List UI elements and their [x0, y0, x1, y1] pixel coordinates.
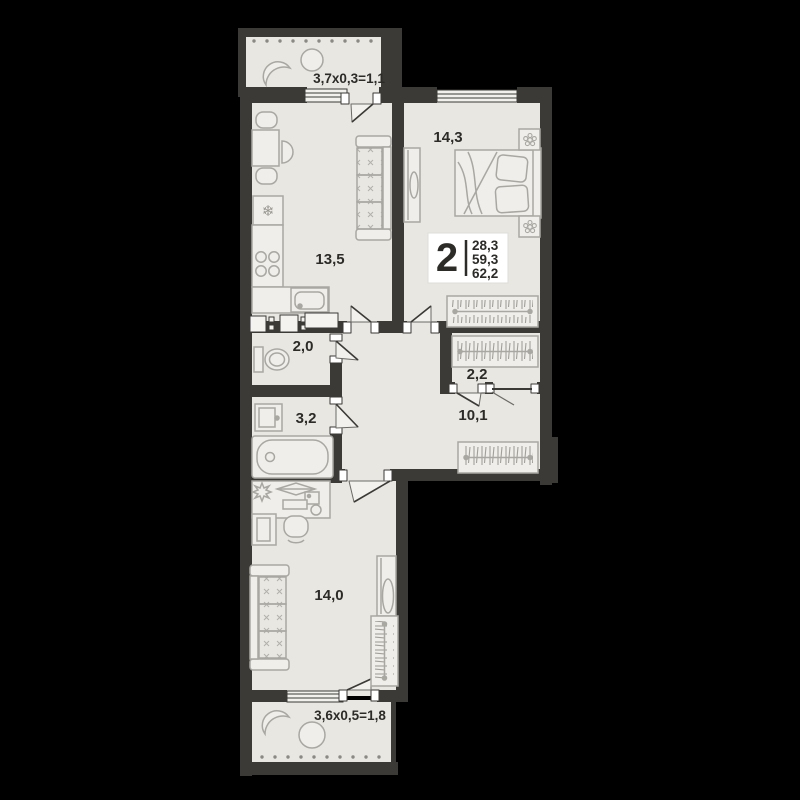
balcony-top-area-label: 3,7х0,3=1,1	[313, 71, 385, 86]
round-table-icon	[299, 722, 325, 748]
wall-right	[540, 87, 552, 485]
chair-icon	[256, 168, 277, 184]
closet-wardrobe-icon	[452, 336, 538, 367]
floor-plan-svg: ❄	[0, 0, 800, 800]
dining-table-icon	[252, 130, 279, 166]
living-wardrobe-icon	[371, 616, 398, 686]
wall-balcony2-right	[391, 700, 396, 764]
wall-bath2-right	[330, 363, 342, 385]
round-table-icon	[301, 49, 323, 71]
counter-icon	[305, 313, 338, 328]
keyboard-icon	[283, 500, 307, 509]
unit-badge: 2 28,3 59,3 62,2	[428, 233, 508, 283]
nightstand-icon	[519, 216, 540, 237]
badge-area-3: 62,2	[472, 266, 498, 281]
living-room-area-label: 14,0	[314, 587, 343, 604]
dresser-mirror-icon	[404, 148, 420, 222]
wall-balcony-left	[238, 28, 246, 97]
kitchen-area-label: 13,5	[315, 251, 344, 268]
wall-balcony2-bottom	[240, 762, 398, 775]
wall-baths	[240, 385, 342, 397]
floor-plan-canvas: ❄	[0, 0, 800, 800]
wall-balcony-right	[381, 28, 402, 97]
corridor-wardrobe-icon	[458, 442, 538, 473]
bedroom-wardrobe-icon	[447, 296, 538, 327]
wall-balcony-top	[238, 28, 402, 37]
snowflake-icon: ❄	[262, 203, 275, 220]
bedroom-area-label: 14,3	[433, 129, 462, 146]
toilet-icon	[254, 347, 289, 372]
bedroom-window	[437, 90, 517, 102]
wall-divider	[392, 99, 404, 325]
wall-top-2	[379, 87, 437, 103]
sink-icon	[255, 404, 282, 431]
wall-right-step	[552, 437, 558, 483]
nightstand-icon	[519, 129, 540, 150]
badge-rooms-count: 2	[436, 236, 458, 280]
balcony-bottom-area-label: 3,6х0,5=1,8	[314, 708, 386, 723]
bathroom-area-label: 3,2	[296, 410, 317, 427]
mirror-icon	[377, 556, 396, 616]
bed-icon	[455, 148, 541, 218]
corridor-area-label: 10,1	[458, 407, 487, 424]
living-sofa-icon	[250, 565, 289, 670]
chair-icon	[256, 112, 277, 128]
bathtub-icon	[252, 436, 333, 478]
closet-area-label: 2,2	[467, 366, 488, 383]
kitchen-sofa-icon	[356, 136, 391, 240]
cabinet-icon	[280, 315, 298, 332]
kitchen-sink-icon	[291, 288, 328, 312]
bathroom-small-area-label: 2,0	[293, 338, 314, 355]
badge-area-1: 28,3	[472, 238, 499, 253]
living-room-window	[287, 691, 343, 702]
wall-living-bottom-1	[240, 690, 287, 702]
badge-area-2: 59,3	[472, 252, 499, 267]
wall-left	[240, 87, 252, 776]
cabinet-icon	[252, 514, 276, 545]
desk-lamp-icon	[253, 483, 271, 501]
washing-machine-icon	[250, 316, 266, 332]
